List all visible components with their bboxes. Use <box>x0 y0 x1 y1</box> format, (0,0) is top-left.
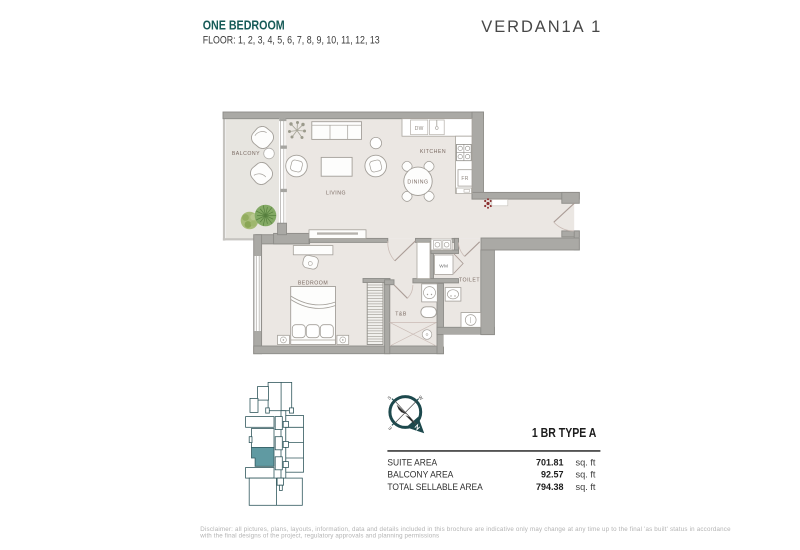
svg-text:1 BR TYPE A: 1 BR TYPE A <box>532 426 597 440</box>
svg-text:WM: WM <box>439 263 448 269</box>
svg-text:S: S <box>387 395 393 401</box>
svg-text:LIVING: LIVING <box>326 191 346 197</box>
svg-text:KITCHEN: KITCHEN <box>420 149 446 155</box>
svg-text:with the final designs of the: with the final designs of the project, r… <box>199 532 439 539</box>
svg-text:E: E <box>387 425 393 431</box>
svg-text:VERDAN1A 1: VERDAN1A 1 <box>481 18 600 36</box>
svg-text:TOTAL SELLABLE AREA: TOTAL SELLABLE AREA <box>387 482 483 493</box>
svg-text:92.57: 92.57 <box>541 470 564 481</box>
svg-text:BEDROOM: BEDROOM <box>298 281 328 287</box>
svg-text:W: W <box>417 395 424 402</box>
svg-text:sq. ft: sq. ft <box>576 458 596 469</box>
svg-text:ONE BEDROOM: ONE BEDROOM <box>203 18 285 33</box>
svg-text:DINING: DINING <box>407 179 428 185</box>
svg-text:TOILET: TOILET <box>459 278 480 284</box>
svg-text:794.38: 794.38 <box>536 482 564 493</box>
svg-text:sq. ft: sq. ft <box>576 482 596 493</box>
svg-text:BALCONY AREA: BALCONY AREA <box>387 470 454 481</box>
svg-text:FR: FR <box>461 176 468 182</box>
svg-text:FLOOR: 1, 2, 3, 4, 5, 6, 7, 8,: FLOOR: 1, 2, 3, 4, 5, 6, 7, 8, 9, 10, 11… <box>203 35 380 47</box>
svg-text:SUITE AREA: SUITE AREA <box>387 458 437 469</box>
svg-text:DW: DW <box>415 126 424 132</box>
svg-text:sq. ft: sq. ft <box>576 470 596 481</box>
svg-text:BALCONY: BALCONY <box>232 151 260 157</box>
svg-text:T&B: T&B <box>395 312 407 318</box>
svg-text:701.81: 701.81 <box>536 458 564 469</box>
